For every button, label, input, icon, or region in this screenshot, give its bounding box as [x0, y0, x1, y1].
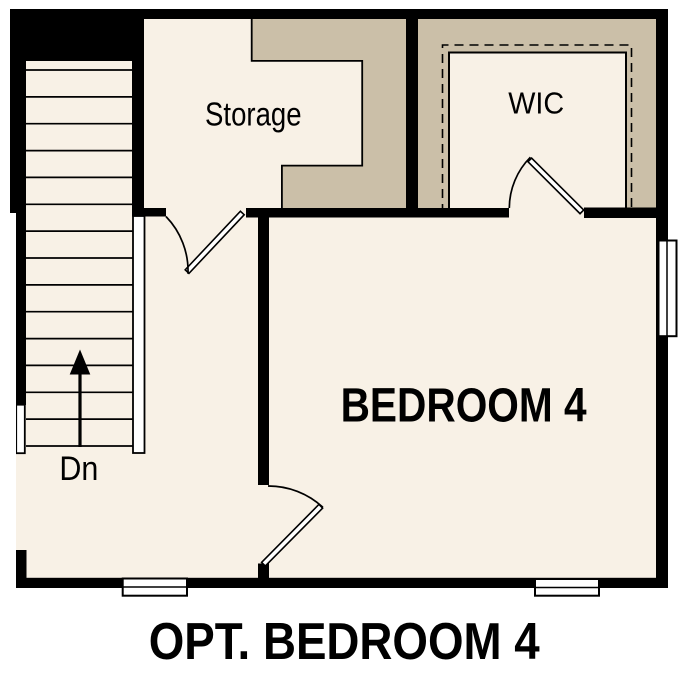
svg-text:Storage: Storage [205, 97, 302, 134]
svg-text:OPT. BEDROOM 4: OPT. BEDROOM 4 [149, 613, 540, 671]
svg-text:BEDROOM 4: BEDROOM 4 [341, 380, 587, 433]
svg-text:Dn: Dn [59, 450, 98, 488]
svg-text:WIC: WIC [508, 86, 564, 121]
